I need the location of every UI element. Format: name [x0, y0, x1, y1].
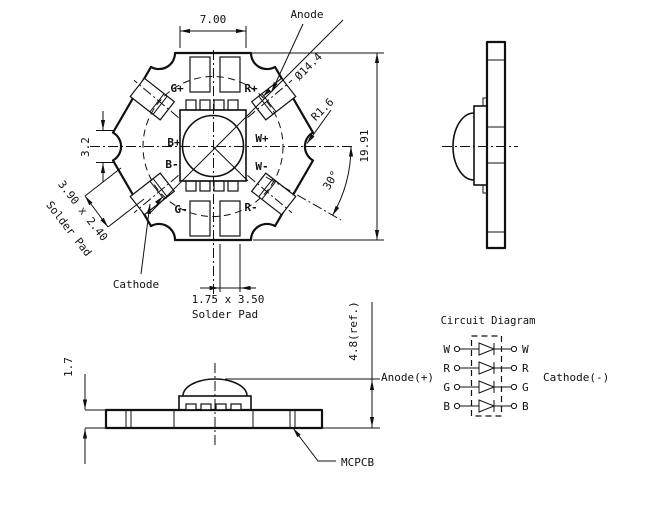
circuit-row-r: R R [443, 362, 529, 375]
dim-radius-text: R1.6 [309, 96, 337, 124]
star-top-view: 7.00 19.91 3.2 30° R1.6 Ø14.4 [43, 8, 384, 321]
technical-drawing-page: 7.00 19.91 3.2 30° R1.6 Ø14.4 [0, 0, 667, 512]
circuit-row-g: G G [443, 381, 528, 394]
pad-g-minus [190, 201, 210, 236]
channel-label-left: W [443, 343, 450, 356]
dim-height-text: 19.91 [358, 129, 371, 162]
channel-label-left: G [443, 381, 450, 394]
diode-icon [479, 381, 494, 393]
diode-icon [479, 400, 494, 412]
dim-30-deg: 30° [320, 147, 351, 216]
label-b-minus: B- [165, 158, 178, 171]
led-star-mcpcb-drawing: 7.00 19.91 3.2 30° R1.6 Ø14.4 [0, 0, 667, 512]
diode-icon [479, 343, 494, 355]
channel-label-right: B [522, 400, 529, 413]
mcpcb-callout: MCPCB [293, 428, 374, 469]
diode-icon [479, 362, 494, 374]
channel-label-right: R [522, 362, 529, 375]
side-led-body [474, 106, 487, 185]
bottom-pad-name-text: Solder Pad [192, 308, 258, 321]
dim-1-7: 1.7 [62, 357, 106, 464]
pad-r-minus [220, 201, 240, 236]
mcpcb-label: MCPCB [341, 456, 374, 469]
dim-notch-text: 3.2 [79, 137, 92, 157]
side-board [487, 42, 505, 248]
dim-width-text: 7.00 [200, 13, 227, 26]
label-g-plus: G+ [170, 82, 184, 95]
label-g-minus: G- [174, 203, 187, 216]
front-view: 1.7 4.8(ref.) MCPCB [62, 301, 380, 469]
circuit-dashed-box [472, 336, 502, 416]
circuit-row-b: B B [443, 400, 529, 413]
dim-ref-height-text: 4.8(ref.) [347, 301, 360, 361]
dim-r1-6: R1.6 [307, 96, 336, 144]
channel-label-right: W [522, 343, 529, 356]
circuit-cathode-label: Cathode(-) [543, 371, 609, 384]
dim-bottom-pad: 1.75 x 3.50 Solder Pad [192, 244, 265, 321]
circuit-diagram: Circuit Diagram W W R R G [381, 315, 609, 416]
circuit-row-w: W W [443, 343, 529, 356]
pad-r-plus [220, 57, 240, 92]
anode-label: Anode [290, 8, 323, 21]
channel-label-left: R [443, 362, 450, 375]
pad-g-plus [190, 57, 210, 92]
side-view [442, 42, 518, 248]
circuit-title: Circuit Diagram [441, 315, 536, 327]
channel-label-left: B [443, 400, 450, 413]
circuit-anode-label: Anode(+) [381, 371, 434, 384]
dim-angle-text: 30° [320, 168, 341, 192]
label-w-minus: W- [255, 160, 268, 173]
channel-label-right: G [522, 381, 529, 394]
dim-thickness-text: 1.7 [62, 357, 75, 377]
bottom-pad-size-text: 1.75 x 3.50 [192, 293, 265, 306]
label-w-plus: W+ [255, 132, 269, 145]
cathode-label: Cathode [113, 278, 159, 291]
label-b-plus: B+ [167, 136, 181, 149]
label-r-minus: R- [244, 201, 257, 214]
dim-7-00: 7.00 [180, 13, 246, 48]
label-r-plus: R+ [244, 82, 258, 95]
